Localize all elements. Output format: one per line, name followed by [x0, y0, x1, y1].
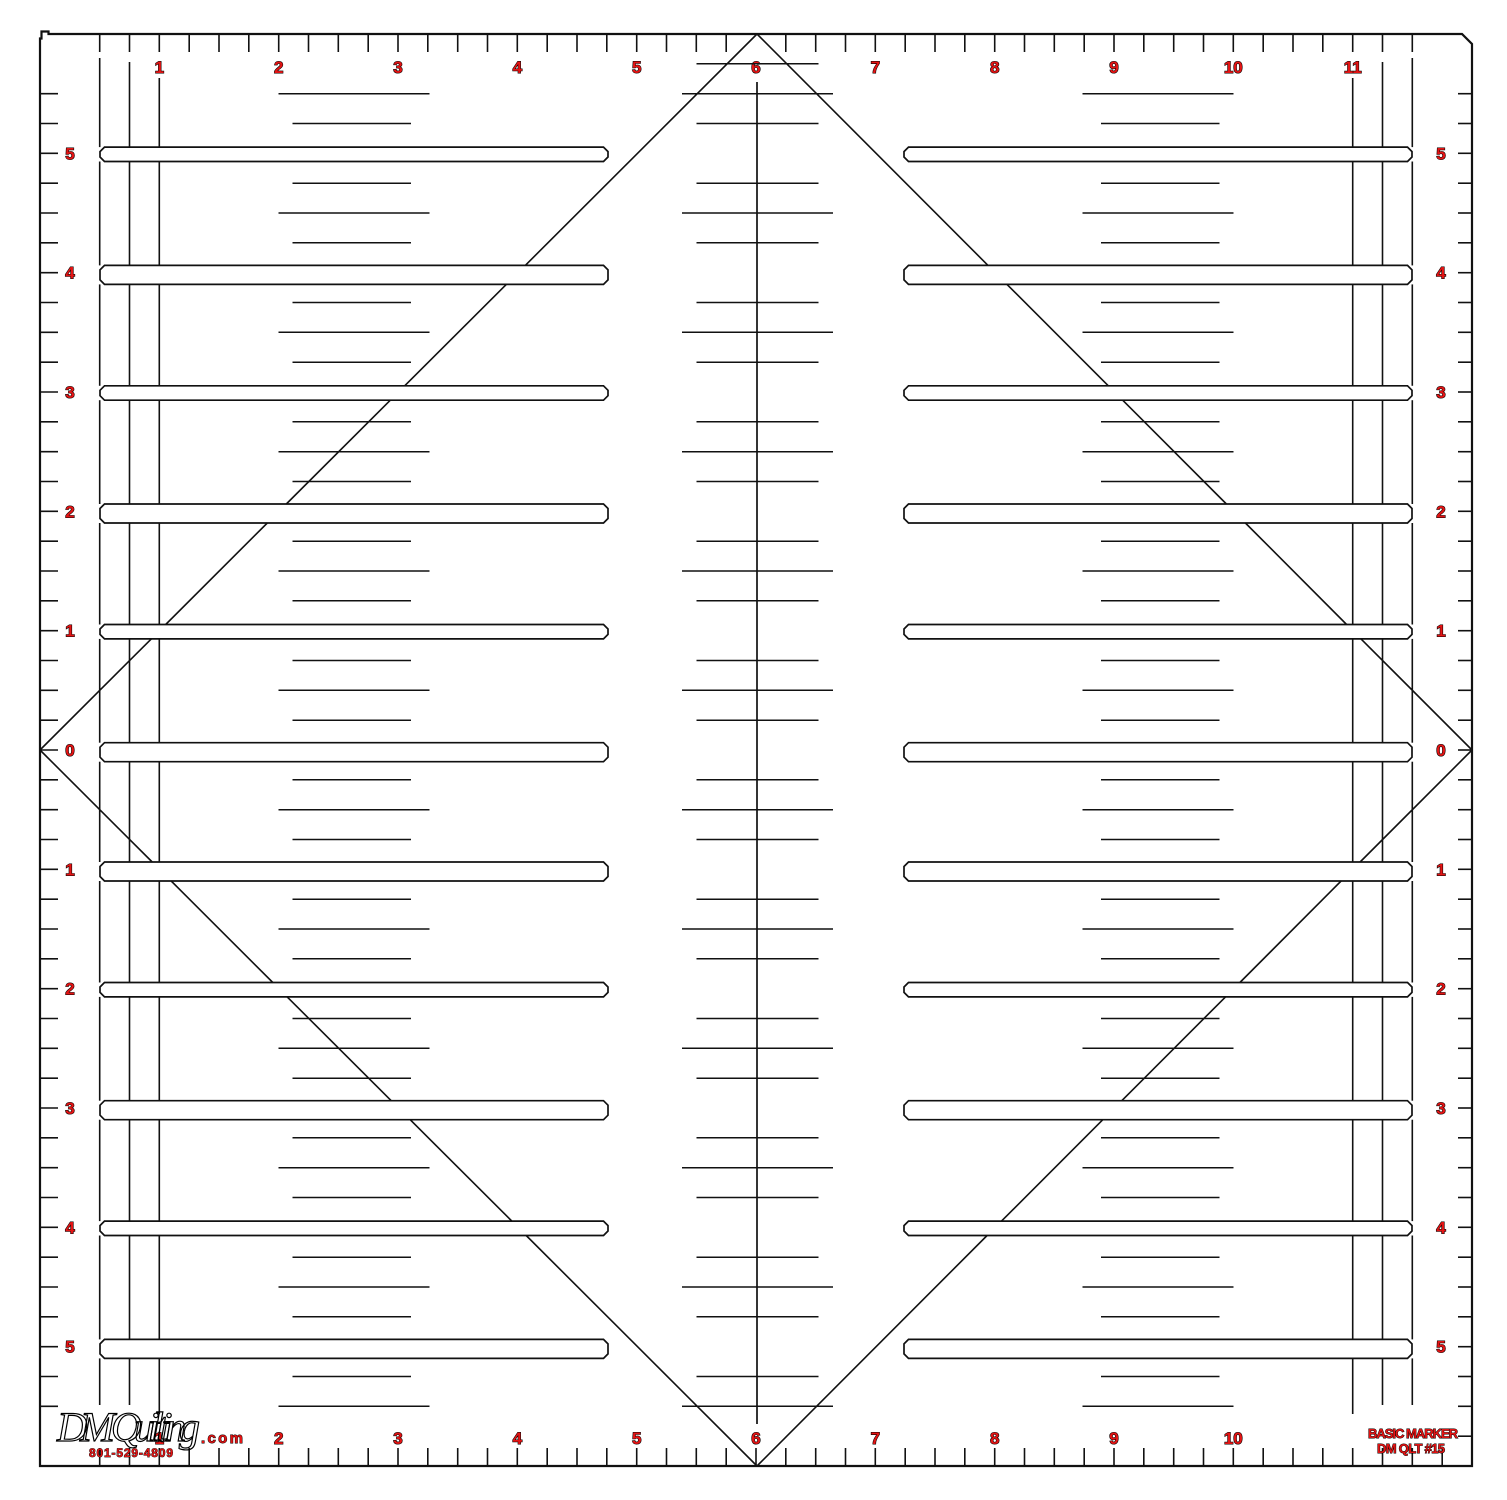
svg-text:1: 1 [1436, 622, 1445, 641]
svg-text:11: 11 [1344, 58, 1362, 77]
svg-text:7: 7 [871, 1429, 880, 1448]
svg-text:6: 6 [751, 1429, 760, 1448]
svg-text:DM QLT #15: DM QLT #15 [1377, 1441, 1445, 1456]
svg-text:1: 1 [65, 860, 74, 879]
svg-text:9: 9 [1109, 1429, 1118, 1448]
svg-text:3: 3 [393, 1429, 402, 1448]
svg-text:BASIC MARKER: BASIC MARKER [1368, 1426, 1459, 1441]
svg-text:5: 5 [65, 1338, 74, 1357]
svg-text:5: 5 [1436, 1338, 1445, 1357]
svg-text:5: 5 [632, 1429, 641, 1448]
svg-text:2: 2 [274, 1429, 283, 1448]
svg-text:3: 3 [65, 383, 74, 402]
svg-text:2: 2 [65, 980, 74, 999]
svg-text:7: 7 [871, 58, 880, 77]
svg-text:4: 4 [513, 58, 523, 77]
svg-text:1: 1 [65, 622, 74, 641]
svg-text:2: 2 [1436, 980, 1445, 999]
svg-text:.com: .com [201, 1430, 243, 1447]
svg-text:5: 5 [65, 144, 74, 163]
svg-text:3: 3 [65, 1099, 74, 1118]
svg-text:8: 8 [990, 58, 999, 77]
svg-text:10: 10 [1224, 1429, 1243, 1448]
svg-text:4: 4 [1436, 264, 1446, 283]
svg-text:9: 9 [1109, 58, 1118, 77]
svg-text:2: 2 [274, 58, 283, 77]
svg-text:3: 3 [1436, 383, 1445, 402]
svg-text:801-529-4809: 801-529-4809 [89, 1446, 173, 1460]
svg-text:5: 5 [1436, 144, 1445, 163]
svg-text:0: 0 [65, 741, 74, 760]
svg-text:3: 3 [1436, 1099, 1445, 1118]
svg-text:4: 4 [65, 264, 75, 283]
svg-text:5: 5 [632, 58, 641, 77]
svg-text:0: 0 [1436, 741, 1445, 760]
svg-text:10: 10 [1224, 58, 1243, 77]
svg-text:6: 6 [751, 58, 760, 77]
svg-text:8: 8 [990, 1429, 999, 1448]
svg-text:3: 3 [393, 58, 402, 77]
svg-text:4: 4 [1436, 1218, 1446, 1237]
svg-text:2: 2 [65, 502, 74, 521]
svg-text:4: 4 [513, 1429, 523, 1448]
svg-text:1: 1 [155, 58, 164, 77]
svg-text:DM Quilting: DM Quilting [56, 1405, 200, 1451]
svg-text:2: 2 [1436, 502, 1445, 521]
svg-text:1: 1 [1436, 860, 1445, 879]
svg-text:4: 4 [65, 1218, 75, 1237]
